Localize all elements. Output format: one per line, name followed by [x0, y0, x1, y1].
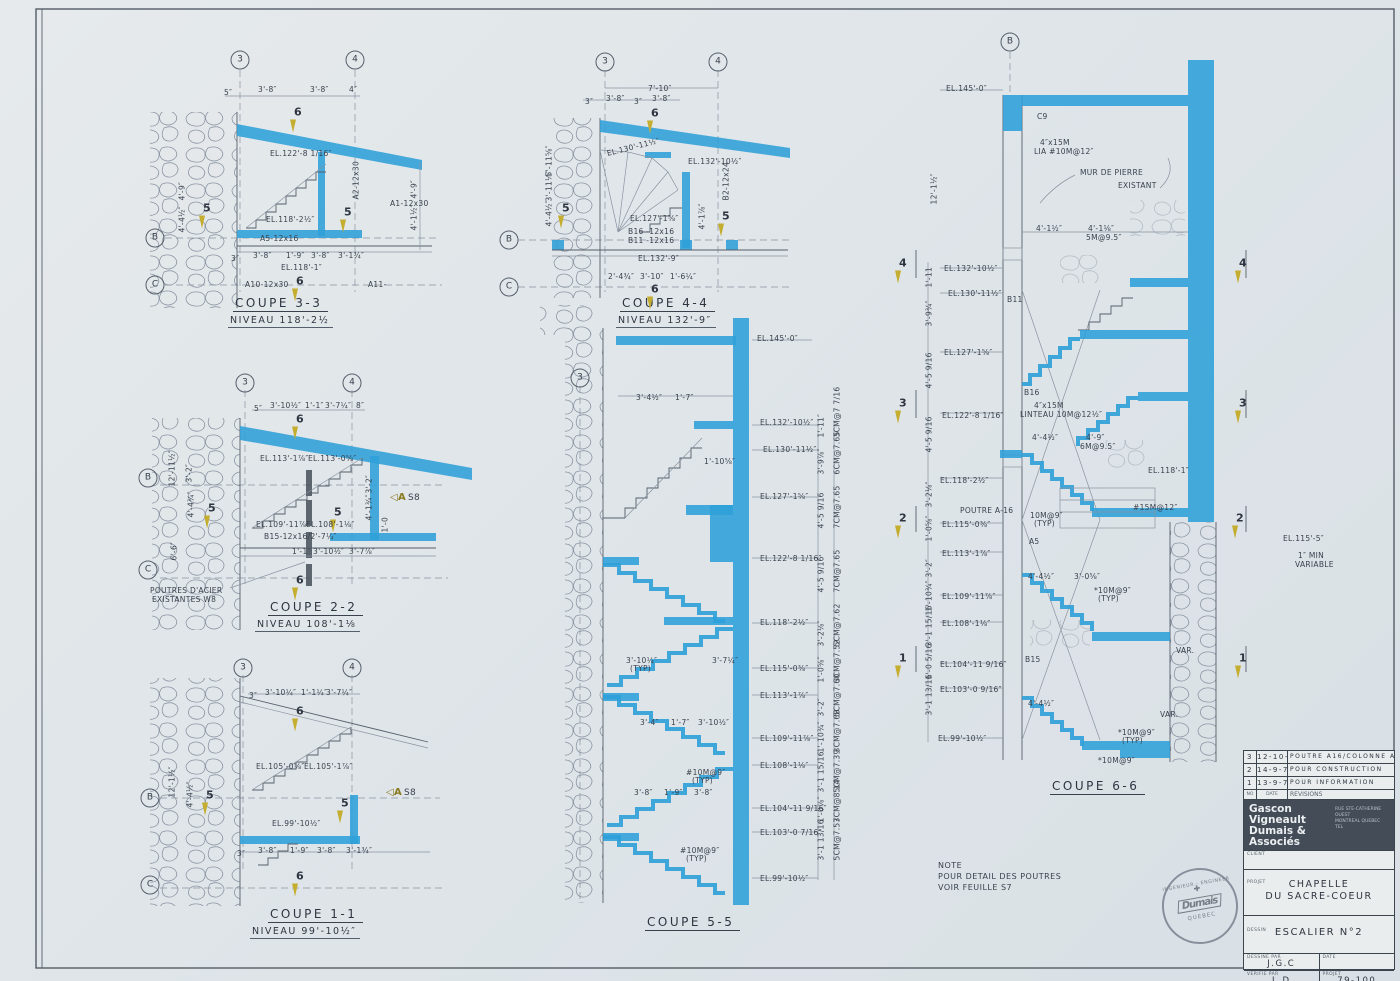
annotation-label: 3'-8″ [253, 251, 272, 260]
annotation-label: 3'-10½″ [270, 401, 301, 410]
annotation-label: 7CM@7.65 [833, 485, 842, 528]
section-flag-marker: 6 [651, 283, 659, 296]
annotation-label: 4'-1⅞″ [698, 203, 707, 229]
annotation-label: EL.127'-1⅝″ [760, 492, 809, 501]
annotation-label: MUR DE PIERRE [1080, 168, 1143, 177]
annotation-label: 4″ [349, 85, 357, 94]
note-line: VOIR FEUILLE S7 [938, 882, 1061, 893]
rev-date: 14-9-79 [1257, 764, 1288, 776]
annotation-label: 4'-5 9/16 [817, 492, 826, 528]
annotation-label: A2-12x30 [352, 161, 361, 200]
section-flag-marker: 5 [334, 506, 342, 519]
annotation-label: 3'-9¾″ [925, 300, 934, 326]
annotation-label: EL.109'-11⅞″ [942, 592, 996, 601]
annotation-label: EL.99'-10½″ [272, 819, 321, 828]
annotation-label: 3'-4½″ [636, 393, 662, 402]
coupe-3-3-subtitle: NIVEAU 118'-2½ [228, 315, 333, 328]
project-no-cell: PROJET 79-100 [1320, 971, 1395, 981]
section-flag-marker: 3 [1239, 397, 1247, 410]
annotation-label: 3'-10″ [640, 272, 664, 281]
annotation-label: VAR. [1160, 710, 1178, 719]
section-flag-marker: 6 [296, 413, 304, 426]
annotation-label: 3'-2⅛″ [817, 620, 826, 646]
annotation-label: EL.113'-1⅞″ [942, 549, 991, 558]
annotation-label: 12'-1½″ [168, 766, 177, 797]
annotation-label: EXISTANT [1118, 181, 1157, 190]
note-line: POUR DETAIL DES POUTRES [938, 871, 1061, 882]
rev-date: 12-10-79 [1257, 751, 1288, 763]
annotation-label: 1'-1″ [292, 547, 311, 556]
annotation-label: 3'-10¼″ [265, 688, 296, 697]
annotation-label: 4'-5 9/16 [925, 416, 934, 452]
annotation-label: EL.118'-1″ [281, 263, 322, 272]
section-flag-marker: 4 [1239, 257, 1247, 270]
section-flag-marker: 1 [1239, 652, 1247, 665]
section-flag-marker: 6 [294, 106, 302, 119]
annotation-label: 3'-10½″ [698, 718, 729, 727]
annotation-label: 6M@9.5″ [1080, 442, 1116, 451]
annotation-label: EL.105'-1⅞″ [304, 762, 353, 771]
rev-header-date: DATE [1257, 790, 1288, 799]
annotation-label: 3'-1 15/16 [817, 751, 826, 792]
drawn-value: J.G.C [1244, 959, 1319, 969]
revision-header: NO DATE REVISIONS [1244, 790, 1394, 800]
coupe-2-2-title: COUPE 2-2 [268, 600, 363, 616]
grid-bubble: 3 [234, 659, 253, 678]
checked-cell: VERIFIE PAR L.D [1244, 971, 1320, 981]
annotation-label: 3'-0⅝″ [1074, 572, 1100, 581]
annotation-label: 1'-11 [925, 267, 934, 288]
annotation-label: 4'-5 9/16 [925, 352, 934, 388]
annotation-label: 1'-10¾″ [817, 721, 826, 752]
coupe-5-5-title: COUPE 5-5 [645, 915, 740, 931]
annotation-label: 7'-10″ [648, 84, 672, 93]
annotation-label: 1'-1¼″ [301, 688, 327, 697]
rev-desc: POUR CONSTRUCTION [1288, 764, 1394, 776]
annotation-label: 3'-2″ [185, 464, 194, 483]
annotation-label: 3'-1¾″ [338, 251, 364, 260]
section-flag-marker: 5 [206, 789, 214, 802]
firm-address-line: TEL [1335, 825, 1392, 831]
coupe-2-2-subtitle: NIVEAU 108'-1⅛ [255, 619, 360, 632]
annotation-label: A11- [368, 280, 387, 289]
grid-bubble: B [146, 229, 165, 248]
rev-header-no: NO [1244, 790, 1257, 799]
annotation-label: B11 [1007, 295, 1023, 304]
annotation-label: 3'-7¼″ [712, 656, 738, 665]
annotation-label: EL.105'-0⅝″ [256, 762, 305, 771]
drawing-linework [0, 0, 1400, 981]
annotation-label: 4'-4½″ [178, 206, 187, 232]
coupe-4-4-subtitle: NIVEAU 132'-9″ [616, 315, 716, 328]
annotation-label: 4'-1⅛″ [1088, 224, 1114, 233]
grid-bubble: 4 [346, 51, 365, 70]
annotation-label: 4'-5 9/16 [817, 556, 826, 592]
annotation-label: 1'-7″ [675, 393, 694, 402]
grid-bubble: C [500, 278, 519, 297]
section-flag-marker: 2 [1236, 512, 1244, 525]
annotation-label: EL.109'-11⅞ [256, 520, 307, 529]
annotation-label: *10M@9″ [1098, 756, 1135, 765]
annotation-label: (TYP) [1034, 519, 1055, 528]
annotation-label: EL.122'-8 1/16″ [270, 149, 332, 158]
annotation-label: 4'-4½″ [186, 781, 195, 807]
annotation-label: 3″ [249, 691, 257, 700]
rev-desc: POUR INFORMATION [1288, 777, 1394, 789]
annotation-label: ◁A [390, 492, 406, 503]
annotation-label: (TYP) [692, 776, 713, 785]
section-flag-marker: 5 [203, 202, 211, 215]
annotation-label: 3″ [585, 97, 593, 106]
annotation-label: EL.122'-8 1/16″ [760, 554, 822, 563]
annotation-label: 4'-4½″ [1028, 699, 1054, 708]
annotation-label: 3'-8″ [606, 94, 625, 103]
annotation-label: POUTRE A-16 [960, 506, 1013, 515]
annotation-label: 3'-8″ [311, 251, 330, 260]
annotation-label: EL.104'-11 9/16″ [940, 660, 1007, 669]
annotation-label: 3'-7⅞″ [349, 547, 375, 556]
firm-address: RUE STE-CATHERINE OUEST MONTREAL QUEBEC … [1333, 800, 1394, 850]
annotation-label: 3'-1 13/16 [925, 674, 934, 715]
annotation-label: 3'-11⅛″ [545, 170, 554, 201]
annotation-label: 4'-1½″ [1036, 224, 1062, 233]
annotation-label: S8 [408, 493, 420, 503]
annotation-label: B11 -12x16 [628, 236, 674, 245]
project-name-line: CHAPELLE [1244, 879, 1394, 891]
annotation-label: 3CM@7 7/16 [833, 387, 842, 438]
annotation-label: EL.132'-10½″ [944, 264, 998, 273]
annotation-label: 3'-2″ [365, 475, 374, 494]
annotation-label: EL.113'-1⅞″ [760, 691, 809, 700]
section-flag-marker: 6 [296, 275, 304, 288]
annotation-label: EL.99'-10½″ [938, 734, 987, 743]
section-flag-marker: 1 [899, 652, 907, 665]
annotation-label: 4'-4½″ [1028, 572, 1054, 581]
firm-name: Gascon Vigneault Dumais & Associés [1244, 800, 1333, 850]
project-cell: PROJET CHAPELLE DU SACRE-COEUR [1244, 879, 1394, 916]
annotation-label: EL.113'-1⅞″ [260, 454, 309, 463]
coupe-1-1-subtitle: NIVEAU 99'-10½″ [250, 926, 360, 939]
annotation-label: 3'-1 13/16 [817, 819, 826, 860]
annotation-label: EL.130'-11½″ [948, 289, 1002, 298]
blueprint-sheet: COUPE 3-3 NIVEAU 118'-2½ COUPE 2-2 NIVEA… [0, 0, 1400, 981]
annotation-label: 2'-4¾″ [608, 272, 634, 281]
annotation-label: 12'-1½″ [930, 173, 939, 204]
annotation-label: 4″x15M [1034, 401, 1064, 410]
annotation-label: EL.118'-2½″ [760, 618, 809, 627]
coupe-1-1-title: COUPE 1-1 [268, 907, 363, 923]
annotation-label: LIA #10M@12″ [1034, 147, 1094, 156]
section-flag-marker: 5 [722, 210, 730, 223]
annotation-label: LINTEAU 10M@12½″ [1020, 410, 1102, 419]
note-title: NOTE [938, 860, 1061, 871]
annotation-label: 4'-1¾″ [365, 494, 374, 520]
grid-bubble: 3 [571, 369, 590, 388]
annotation-label: B15 [1025, 655, 1041, 664]
grid-bubble: 3 [236, 374, 255, 393]
annotation-label: EL.113'-0⅝″ [308, 454, 357, 463]
stamp-bottom-text: QUEBEC [1166, 908, 1238, 926]
annotation-label: EL.109'-11⅞″ [760, 734, 814, 743]
annotation-label: 7CM@7.65 [833, 549, 842, 592]
annotation-label: 3'-8″ [652, 94, 671, 103]
checked-label: VERIFIE PAR [1247, 972, 1279, 977]
section-flag-marker: 6 [296, 705, 304, 718]
annotation-label: VAR. [1176, 646, 1194, 655]
date-cell: DATE [1320, 954, 1395, 970]
annotation-label: B15-12x16/2'-7¼″ [264, 532, 337, 541]
annotation-label: 5″ [254, 404, 262, 413]
annotation-label: 5CM@7.57 [833, 817, 842, 860]
annotation-label: 3″ [237, 849, 245, 858]
annotation-label: EL.108'-1⅛″ [760, 761, 809, 770]
annotation-label: 3'-2″ [925, 559, 934, 578]
grid-bubble: B [139, 469, 158, 488]
annotation-label: EL.145'-0″ [946, 84, 987, 93]
annotation-label: EXISTANTES W8 [152, 595, 216, 604]
grid-bubble: 3 [596, 53, 615, 72]
annotation-label: VARIABLE [1295, 560, 1334, 569]
annotation-label: EL.103'-0 9/16″ [940, 685, 1002, 694]
firm-band: Gascon Vigneault Dumais & Associés RUE S… [1244, 800, 1394, 851]
annotation-label: #15M@12″ [1133, 503, 1178, 512]
annotation-label: 3'-9⅞″ [817, 448, 826, 474]
annotation-label: 6CM@7.65 [833, 431, 842, 474]
annotation-label: (TYP) [1098, 594, 1119, 603]
annotation-label: 3'-2⅛″ [925, 481, 934, 507]
annotation-label: 1'-0⅝″ [817, 656, 826, 682]
annotation-label: 3'-7¼″ [326, 688, 352, 697]
client-cell: CLIENT [1244, 851, 1394, 870]
annotation-label: B16 [1024, 388, 1040, 397]
section-flag-marker: 4 [899, 257, 907, 270]
annotation-label: EL.118'-1″ [1148, 466, 1189, 475]
annotation-label: 3'-8″ [634, 788, 653, 797]
checked-projectno-row: VERIFIE PAR L.D PROJET 79-100 [1244, 971, 1394, 981]
section-flag-marker: 2 [899, 512, 907, 525]
drawing-cell: DESSIN ESCALIER N°2 [1244, 927, 1394, 954]
annotation-label: 8″ [356, 401, 364, 410]
section-flag-marker: 6 [296, 870, 304, 883]
annotation-label: 3CM@7.68 [833, 709, 842, 752]
date-label: DATE [1323, 955, 1336, 960]
rev-no: 3 [1244, 751, 1257, 763]
drawn-date-row: DESSINE PAR J.G.C DATE [1244, 954, 1394, 971]
annotation-label: ◁A [386, 787, 402, 798]
annotation-label: EL.115'-5″ [1283, 534, 1324, 543]
annotation-label: EL.127'-1⅝″ [944, 348, 993, 357]
annotation-label: EL.145'-0″ [757, 334, 798, 343]
revision-row: 2 14-9-79 POUR CONSTRUCTION [1244, 764, 1394, 777]
annotation-label: 1'-0⅝″ [925, 515, 934, 541]
annotation-label: EL.118'-2½″ [266, 215, 315, 224]
grid-bubble: C [141, 876, 160, 895]
firm-address-line: RUE STE-CATHERINE OUEST [1335, 807, 1392, 819]
drawn-cell: DESSINE PAR J.G.C [1244, 954, 1320, 970]
grid-bubble: 4 [343, 659, 362, 678]
annotation-label: POUTRES D'ACIER [150, 586, 222, 595]
annotation-label: (TYP) [1122, 736, 1143, 745]
annotation-label: 3'-8″ [317, 846, 336, 855]
annotation-label: EL.99'-10½″ [760, 874, 809, 883]
grid-bubble: C [139, 561, 158, 580]
annotation-label: 1'-7″ [671, 718, 690, 727]
revision-row: 3 12-10-79 POUTRE A16/COLONNE AJOUTEES [1244, 751, 1394, 764]
annotation-label: EL.132'-9″ [638, 254, 679, 263]
annotation-label: EL.103'-0 7/16″ [760, 828, 822, 837]
section-flag-marker: 5 [344, 206, 352, 219]
annotation-label: EL.108'-1⅛″ [942, 619, 991, 628]
annotation-label: EL.132'-10½″ [688, 157, 742, 166]
annotation-label: 1'-6¼″ [670, 272, 696, 281]
annotation-label: 1'-1″ [305, 401, 324, 410]
drawing-name: ESCALIER N°2 [1244, 927, 1394, 938]
annotation-label: EL.122'-8 1/16″ [942, 411, 1004, 420]
general-note: NOTE POUR DETAIL DES POUTRES VOIR FEUILL… [938, 860, 1061, 893]
annotation-label: A5 [1029, 537, 1040, 546]
annotation-label: 3″ [231, 254, 239, 263]
project-label: PROJET [1247, 880, 1266, 885]
rev-no: 2 [1244, 764, 1257, 776]
annotation-label: 1'-11″ [817, 414, 826, 438]
annotation-label: 3'-1¾″ [346, 846, 372, 855]
annotation-label: (TYP) [630, 664, 651, 673]
section-flag-marker: 3 [899, 397, 907, 410]
annotation-label: 3'-1 15/16 [925, 605, 934, 646]
annotation-label: 3'-8″ [694, 788, 713, 797]
section-flag-marker: 6 [651, 107, 659, 120]
annotation-label: EL.115'-0⅜″ [942, 520, 991, 529]
title-block: 3 12-10-79 POUTRE A16/COLONNE AJOUTEES 2… [1243, 750, 1395, 970]
annotation-label: 12'-11½″ [168, 450, 177, 486]
grid-bubble: C [146, 276, 165, 295]
firm-name-line: Associés [1249, 837, 1333, 848]
project-name-line: DU SACRE-COEUR [1244, 891, 1394, 903]
annotation-label: 3″ [634, 97, 642, 106]
annotation-label: 4'-9″ [1086, 433, 1105, 442]
rev-header-desc: REVISIONS [1288, 790, 1394, 799]
annotation-label: S8 [404, 788, 416, 798]
annotation-label: 1'-10⅝″ [704, 457, 735, 466]
grid-bubble: B [500, 231, 519, 250]
annotation-label: 3'-2″ [817, 698, 826, 717]
annotation-label: 5M@9.5″ [1086, 233, 1122, 242]
grid-bubble: 4 [709, 53, 728, 72]
annotation-label: A5-12x16 [260, 234, 299, 243]
section-flag-marker: 5 [208, 502, 216, 515]
annotation-label: EL.118'-2½″ [940, 476, 989, 485]
annotation-label: 6'-6″ [170, 542, 179, 561]
revision-row: 1 13-9-79 POUR INFORMATION [1244, 777, 1394, 790]
drawn-label: DESSINE PAR [1247, 955, 1281, 960]
grid-bubble: 4 [343, 374, 362, 393]
annotation-label: 5″ [224, 88, 232, 97]
annotation-label: (TYP) [686, 854, 707, 863]
annotation-label: 4'-4½″ [545, 200, 554, 226]
annotation-label: 3'-8″ [258, 846, 277, 855]
rev-no: 1 [1244, 777, 1257, 789]
grid-bubble: B [141, 789, 160, 808]
annotation-label: 4″x15M [1040, 138, 1070, 147]
annotation-label: A1-12x30 [390, 199, 429, 208]
rev-date: 13-9-79 [1257, 777, 1288, 789]
annotation-label: 4'-4¾″ [187, 491, 196, 517]
annotation-label: EL.130'-11½″ [763, 445, 817, 454]
coupe-4-4-title: COUPE 4-4 [620, 296, 715, 312]
annotation-label: EL.127'-1⅝″ [630, 214, 679, 223]
client-label: CLIENT [1247, 852, 1265, 857]
annotation-label: 4'-9″ [178, 182, 187, 201]
annotation-label: EL.115'-0⅜″ [760, 664, 809, 673]
annotation-label: EL.132'-10½″ [760, 418, 814, 427]
annotation-label: B16 -12x16 [628, 227, 674, 236]
annotation-label: 1'-9″ [290, 846, 309, 855]
annotation-label: 3'-8″ [310, 85, 329, 94]
section-flag-marker: 6 [296, 574, 304, 587]
annotation-label: 1'-9″ [664, 788, 683, 797]
annotation-label: 4'-4½″ [1032, 433, 1058, 442]
grid-bubble: 3 [231, 51, 250, 70]
annotation-label: A10-12x30 [245, 280, 289, 289]
annotation-label: 3'-4″ [640, 718, 659, 727]
annotation-label: 4'-9″ [410, 180, 419, 199]
section-flag-marker: 5 [341, 797, 349, 810]
annotation-label: 1'-0 [381, 517, 390, 533]
annotation-label: 1″ MIN [1298, 551, 1324, 560]
coupe-3-3-title: COUPE 3-3 [233, 296, 328, 312]
drawing-label: DESSIN [1247, 928, 1266, 933]
rev-desc: POUTRE A16/COLONNE AJOUTEES [1288, 751, 1394, 763]
annotation-label: B2-12x24 [722, 162, 731, 201]
section-flag-marker: 5 [562, 202, 570, 215]
annotation-label: EL.108'-1⅛″ [306, 520, 355, 529]
annotation-label: 1'-9″ [286, 251, 305, 260]
annotation-label: C9 [1037, 112, 1048, 121]
annotation-label: 4'-1½″ [410, 204, 419, 230]
annotation-label: 3CM@8.14 [833, 779, 842, 822]
annotation-label: 3'-8″ [258, 85, 277, 94]
project-no-label: PROJET [1323, 972, 1342, 977]
annotation-label: 3'-7¼″ [325, 401, 351, 410]
annotation-label: 3'-10½″ [313, 547, 344, 556]
grid-bubble: B [1001, 33, 1020, 52]
coupe-6-6-title: COUPE 6-6 [1050, 779, 1145, 795]
